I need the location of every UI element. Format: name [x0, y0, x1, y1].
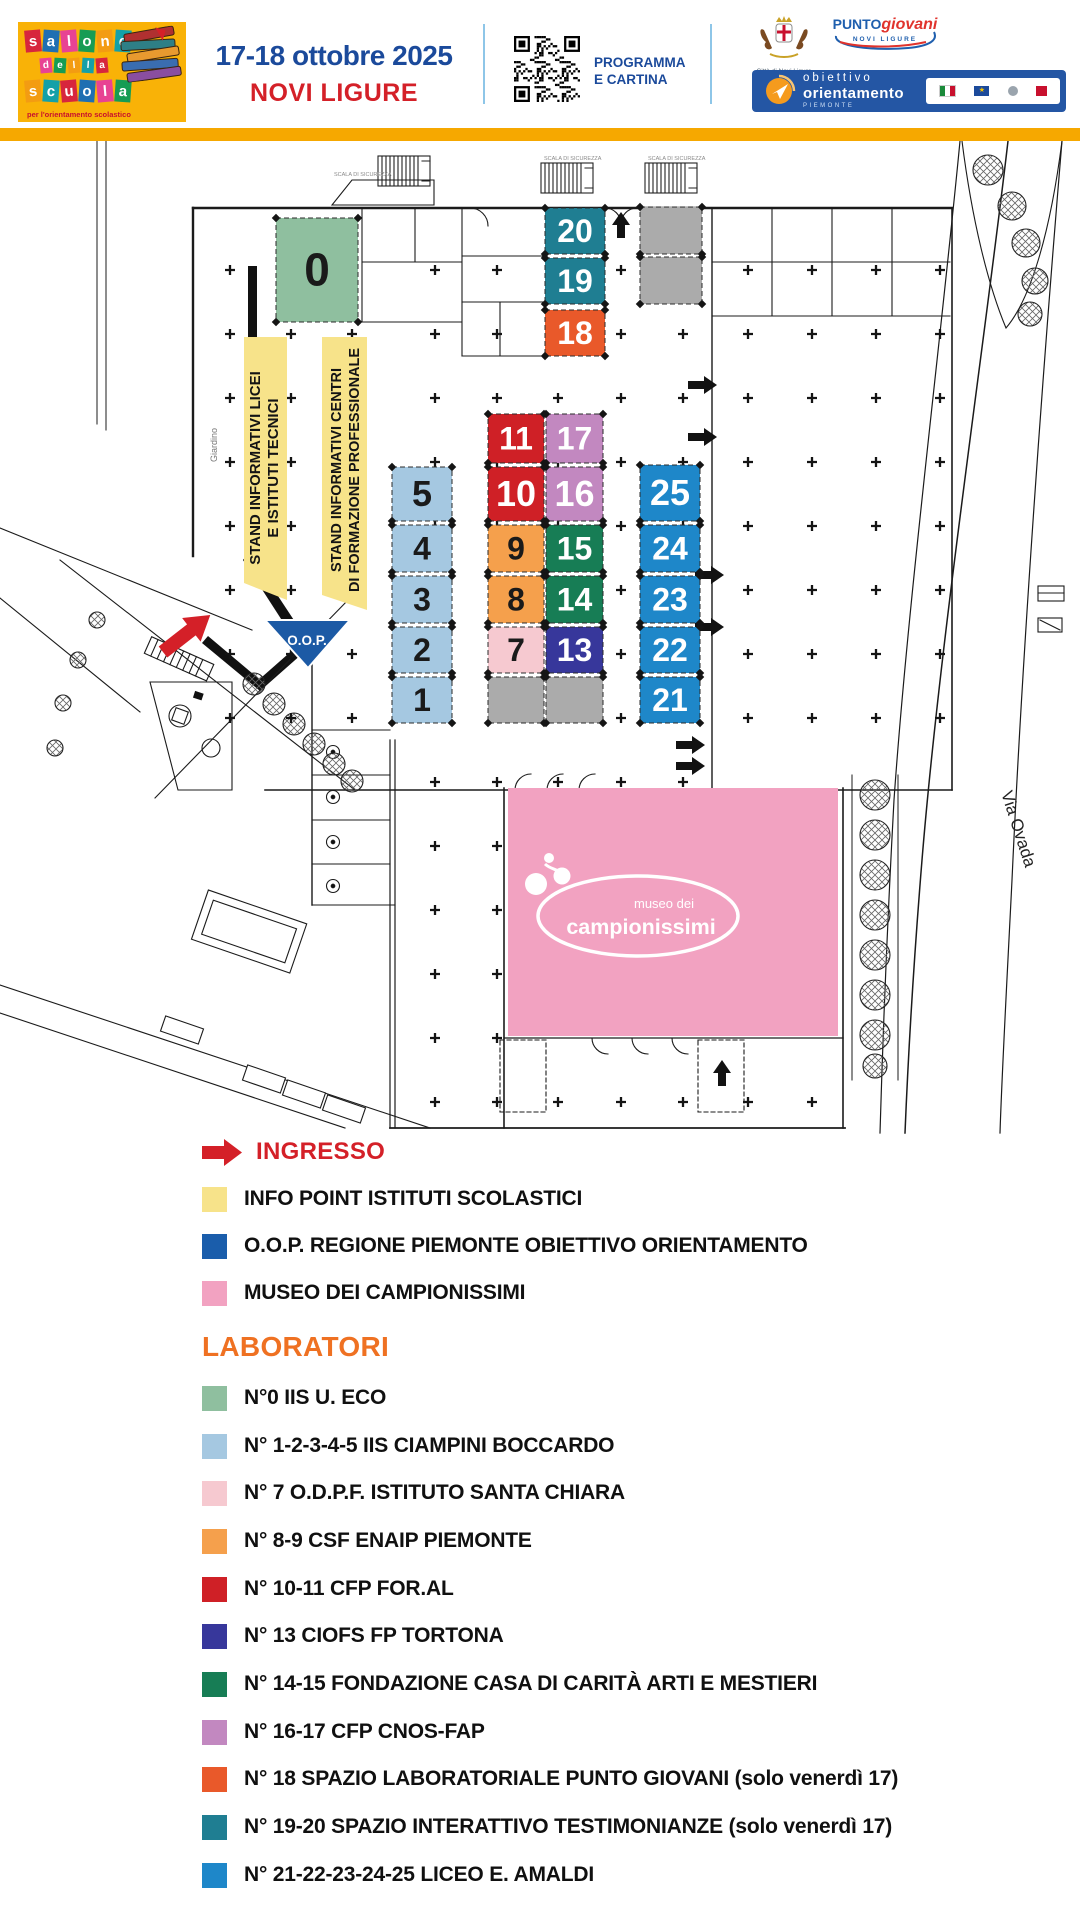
oop-label: O.O.P.: [287, 633, 327, 648]
coat-of-arms-icon: [756, 16, 812, 62]
stand-5: 5: [388, 463, 456, 525]
stand-7: 7: [484, 623, 548, 677]
header-divider-1: [483, 24, 485, 104]
logo-letter-tile: u: [60, 79, 78, 102]
svg-text:20: 20: [557, 213, 593, 249]
logo-letter-tile: o: [78, 79, 95, 102]
legend-row: INFO POINT ISTITUTI SCOLASTICI: [202, 1182, 582, 1216]
giovani-word: giovani: [881, 16, 937, 33]
legend-label: N° 18 SPAZIO LABORATORIALE PUNTO GIOVANI…: [244, 1767, 898, 1791]
legend-label: MUSEO DEI CAMPIONISSIMI: [244, 1281, 525, 1305]
legend-swatch: [202, 1529, 227, 1554]
stand-17: 17: [542, 410, 607, 467]
regione-piemonte-mark: [1036, 86, 1047, 96]
svg-text:7: 7: [507, 632, 525, 668]
svg-text:4: 4: [413, 530, 431, 566]
stand-16: 16: [542, 463, 607, 525]
stand-3: 3: [388, 572, 456, 627]
legend-swatch: [202, 1720, 227, 1745]
header-rule-bar: [0, 128, 1080, 141]
stand-0: 0: [272, 214, 362, 326]
logo-letter-tile: l: [67, 58, 80, 74]
stand-11: 11: [484, 410, 548, 467]
orientamento-word1: obiettivo: [803, 73, 904, 85]
logo-letter-tile: c: [42, 79, 59, 102]
orientamento-plane-icon: [760, 72, 798, 110]
stand-block: [636, 203, 706, 258]
stand-9: 9: [484, 521, 548, 576]
event-city: NOVI LIGURE: [196, 79, 472, 108]
legend-label: N°0 IIS U. ECO: [244, 1386, 386, 1410]
legend-row-lab: N° 1-2-3-4-5 IIS CIAMPINI BOCCARDO: [202, 1429, 614, 1463]
institutional-logos-strip: ★: [926, 78, 1060, 104]
logo-letter-tile: o: [78, 29, 95, 52]
legend-row-lab: N° 7 O.D.P.F. ISTITUTO SANTA CHIARA: [202, 1476, 625, 1510]
legend-swatch: [202, 1281, 227, 1306]
band-licei-label-line2: E ISTITUTI TECNICI: [265, 398, 282, 537]
stand-13: 13: [542, 623, 607, 677]
logo-letter-tile: a: [95, 58, 108, 74]
logo-letter-tile: s: [24, 79, 42, 102]
logo-letter-tile: s: [24, 29, 42, 52]
legend-swatch: [202, 1386, 227, 1411]
laboratori-title: LABORATORI: [202, 1331, 389, 1363]
orientamento-region: PIEMONTE: [803, 103, 904, 109]
legend-swatch: [202, 1624, 227, 1649]
svg-text:19: 19: [557, 263, 593, 299]
logo-letter-tile: l: [96, 79, 114, 102]
stand-20: 20: [541, 204, 609, 258]
stand-1: 1: [388, 673, 456, 727]
legend-row-lab: N° 16-17 CFP CNOS-FAP: [202, 1715, 485, 1749]
up-arrow-icon: [713, 1060, 731, 1086]
stand-block: [636, 253, 706, 308]
orientamento-wordmark: obiettivo orientamento PIEMONTE: [803, 73, 904, 109]
legend-row-lab: N° 18 SPAZIO LABORATORIALE PUNTO GIOVANI…: [202, 1762, 898, 1796]
stand-block: [484, 673, 548, 727]
svg-text:3: 3: [413, 581, 431, 617]
italy-flag-mark: [939, 85, 956, 97]
ingresso-arrow-icon: [202, 1139, 242, 1166]
stand-15: 15: [542, 521, 607, 576]
header-divider-2: [710, 24, 712, 104]
legend-swatch: [202, 1672, 227, 1697]
legend-label: N° 1-2-3-4-5 IIS CIAMPINI BOCCARDO: [244, 1434, 614, 1458]
svg-text:15: 15: [557, 530, 593, 566]
svg-text:2: 2: [413, 632, 431, 668]
legend-label: N° 19-20 SPAZIO INTERATTIVO TESTIMONIANZ…: [244, 1815, 892, 1839]
stand-24: 24: [636, 521, 704, 576]
museo-label-line1: museo dei: [634, 896, 694, 911]
legend: INGRESSO INFO POINT ISTITUTI SCOLASTICI …: [0, 1135, 1080, 1920]
giardino-label: Giardino: [209, 428, 219, 462]
qr-caption-line2: E CARTINA: [594, 71, 686, 88]
legend-label: N° 7 O.D.P.F. ISTITUTO SANTA CHIARA: [244, 1481, 625, 1505]
legend-label: N° 21-22-23-24-25 LICEO E. AMALDI: [244, 1863, 594, 1887]
svg-text:23: 23: [652, 581, 688, 617]
scala-label: SCALA DI SICUREZZA: [334, 172, 392, 178]
floor-plan-svg: STAND INFORMATIVI LICEI E ISTITUTI TECNI…: [0, 141, 1080, 1135]
qr-code: [514, 36, 580, 102]
legend-label: N° 13 CIOFS FP TORTONA: [244, 1624, 504, 1648]
stand-22: 22: [636, 623, 704, 677]
stand-25: 25: [636, 461, 704, 525]
legend-label: INGRESSO: [256, 1138, 385, 1166]
books-illustration: [115, 25, 186, 84]
salone-della-scuola-logo: salone della scuola per l'orientamento s…: [18, 22, 186, 122]
stand-14: 14: [542, 572, 607, 627]
legend-row-ingresso: INGRESSO: [202, 1135, 385, 1169]
laboratori-heading: LABORATORI: [202, 1327, 389, 1367]
svg-text:22: 22: [652, 632, 688, 668]
novi-ligure-coat-of-arms: Città di Novi Ligure: [753, 16, 815, 75]
svg-text:13: 13: [557, 632, 593, 668]
svg-text:25: 25: [650, 472, 690, 513]
legend-row-lab: N° 8-9 CSF ENAIP PIEMONTE: [202, 1524, 532, 1558]
legend-row: O.O.P. REGIONE PIEMONTE OBIETTIVO ORIENT…: [202, 1229, 808, 1263]
legend-row-lab: N° 21-22-23-24-25 LICEO E. AMALDI: [202, 1858, 594, 1892]
logo-word-della: della: [40, 58, 108, 73]
gray-logo-mark: [1008, 86, 1018, 96]
legend-row-lab: N°0 IIS U. ECO: [202, 1381, 386, 1415]
stand-8: 8: [484, 572, 548, 627]
svg-text:11: 11: [499, 420, 533, 456]
stand-2: 2: [388, 623, 456, 677]
legend-swatch: [202, 1234, 227, 1259]
svg-text:14: 14: [557, 581, 593, 617]
via-ovada-label: Via Ovada: [997, 788, 1040, 870]
legend-row-lab: N° 14-15 FONDAZIONE CASA DI CARITÀ ARTI …: [202, 1667, 817, 1701]
right-arrow-icon: [676, 736, 705, 754]
logo-letter-tile: a: [42, 29, 59, 52]
legend-swatch: [202, 1481, 227, 1506]
legend-swatch: [202, 1577, 227, 1602]
stand-10: 10: [484, 463, 548, 525]
logo-letter-tile: d: [39, 58, 52, 74]
event-date-block: 17-18 ottobre 2025 NOVI LIGURE: [196, 40, 472, 108]
legend-swatch: [202, 1434, 227, 1459]
logo-letter-tile: l: [81, 58, 94, 74]
svg-text:8: 8: [507, 581, 525, 617]
museo-label-line2: campionissimi: [566, 915, 715, 939]
legend-row-lab: N° 19-20 SPAZIO INTERATTIVO TESTIMONIANZ…: [202, 1810, 892, 1844]
logo-word-scuola: scuola: [25, 80, 131, 102]
svg-text:10: 10: [496, 473, 536, 514]
museo-campionissimi-area: [508, 788, 838, 1036]
eu-flag-mark: ★: [974, 86, 989, 96]
stand-4: 4: [388, 521, 456, 576]
legend-row-lab: N° 10-11 CFP FOR.AL: [202, 1572, 454, 1606]
punto-word: PUNTO: [833, 16, 882, 32]
logo-letter-tile: n: [96, 29, 114, 52]
logo-letter-tile: l: [60, 29, 78, 52]
stand-18: 18: [541, 306, 609, 360]
band-licei-label-line1: STAND INFORMATIVI LICEI: [247, 371, 264, 565]
svg-text:21: 21: [652, 682, 688, 718]
qr-caption: PROGRAMMA E CARTINA: [594, 54, 686, 88]
band-cfp-label-line1: STAND INFORMATIVI CENTRI: [329, 368, 345, 572]
right-arrow-icon: [676, 757, 705, 775]
legend-row: MUSEO DEI CAMPIONISSIMI: [202, 1276, 525, 1310]
legend-label: INFO POINT ISTITUTI SCOLASTICI: [244, 1187, 582, 1211]
legend-swatch: [202, 1815, 227, 1840]
legend-label: N° 14-15 FONDAZIONE CASA DI CARITÀ ARTI …: [244, 1672, 817, 1696]
svg-text:9: 9: [507, 530, 525, 566]
svg-text:18: 18: [557, 315, 593, 351]
legend-swatch: [202, 1767, 227, 1792]
legend-swatch: [202, 1187, 227, 1212]
legend-row-lab: N° 13 CIOFS FP TORTONA: [202, 1619, 504, 1653]
event-date: 17-18 ottobre 2025: [196, 40, 472, 72]
svg-text:0: 0: [304, 244, 330, 296]
legend-label: N° 8-9 CSF ENAIP PIEMONTE: [244, 1529, 532, 1553]
svg-text:16: 16: [554, 473, 594, 514]
orientamento-word2: orientamento: [803, 86, 904, 101]
svg-text:17: 17: [557, 420, 593, 456]
legend-label: O.O.P. REGIONE PIEMONTE OBIETTIVO ORIENT…: [244, 1234, 808, 1258]
stand-23: 23: [636, 572, 704, 627]
obiettivo-orientamento-banner: obiettivo orientamento PIEMONTE ★: [752, 70, 1066, 112]
svg-text:24: 24: [652, 530, 688, 566]
punto-giovani-logo: PUNTOgiovani NOVI LIGURE: [820, 16, 950, 43]
header: salone della scuola per l'orientamento s…: [0, 0, 1080, 128]
scala-label: SCALA DI SICUREZZA: [648, 156, 706, 162]
legend-label: N° 10-11 CFP FOR.AL: [244, 1577, 454, 1601]
stand-19: 19: [541, 254, 609, 308]
up-arrow-icon: [612, 212, 630, 238]
punto-giovani-wordmark: PUNTOgiovani: [820, 16, 950, 34]
logo-letter-tile: e: [53, 58, 66, 74]
stand-21: 21: [636, 673, 704, 727]
qr-caption-line1: PROGRAMMA: [594, 54, 686, 71]
logo-tagline: per l'orientamento scolastico: [27, 110, 131, 119]
flyer-page: salone della scuola per l'orientamento s…: [0, 0, 1080, 1920]
legend-swatch: [202, 1863, 227, 1888]
svg-text:1: 1: [413, 682, 431, 718]
stand-block: [542, 673, 607, 727]
legend-label: N° 16-17 CFP CNOS-FAP: [244, 1720, 485, 1744]
band-cfp-label-line2: DI FORMAZIONE PROFESSIONALE: [347, 348, 363, 592]
svg-text:5: 5: [412, 473, 432, 514]
scala-label: SCALA DI SICUREZZA: [544, 156, 602, 162]
